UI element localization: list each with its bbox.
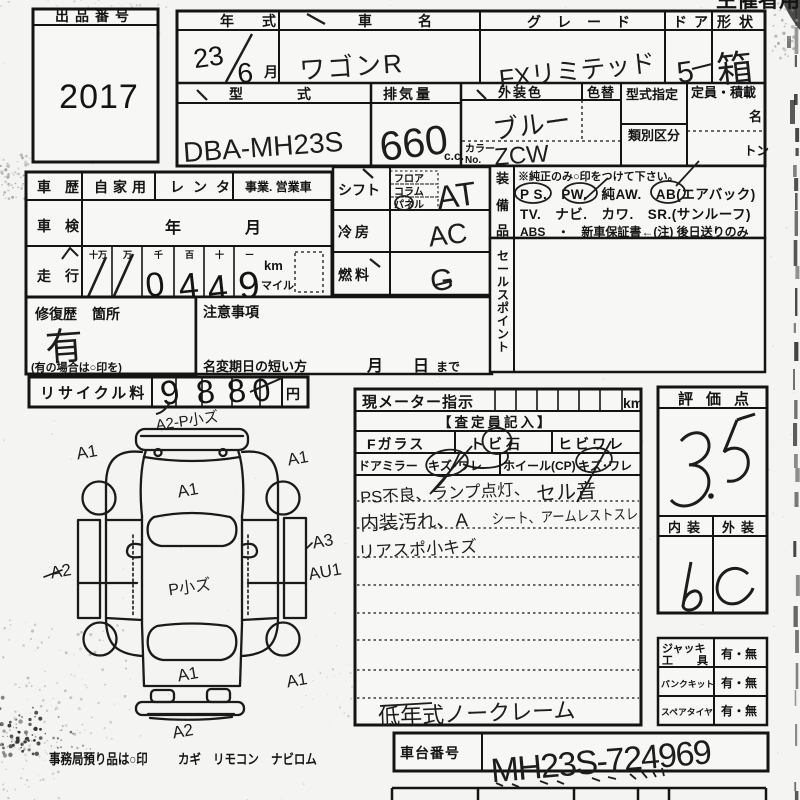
svg-text:車検: 車検: [37, 218, 93, 234]
svg-text:状: 状: [739, 14, 754, 30]
svg-text:ル: ル: [497, 275, 509, 289]
svg-text:A1: A1: [176, 479, 200, 501]
svg-text:ー: ー: [587, 14, 601, 30]
svg-text:レンタ: レンタ: [170, 179, 239, 195]
svg-text:走行: 走行: [37, 268, 93, 284]
svg-text:セル音: セル音: [536, 479, 597, 505]
svg-text:工: 工: [662, 654, 673, 667]
svg-text:名: 名: [749, 109, 762, 124]
svg-text:c.c.: c.c.: [444, 149, 464, 163]
svg-text:名変期日の短い方: 名変期日の短い方: [203, 359, 307, 374]
svg-text:ポ: ポ: [497, 300, 509, 315]
svg-text:A1: A1: [176, 663, 200, 685]
svg-text:TV. ナビ. カワ. SR.(サンルーフ): TV. ナビ. カワ. SR.(サンルーフ): [520, 207, 751, 222]
svg-text:(有の場合は○印を): (有の場合は○印を): [31, 360, 122, 374]
svg-text:パンクキット: パンクキット: [661, 678, 714, 689]
svg-text:替: 替: [601, 85, 615, 100]
svg-text:品: 品: [496, 223, 509, 238]
svg-text:ドアミラー: ドアミラー: [358, 459, 418, 473]
svg-text:トビ石: トビ石: [470, 436, 524, 452]
svg-text:A1: A1: [285, 669, 309, 691]
svg-text:名: 名: [418, 13, 432, 29]
svg-text:km: km: [264, 258, 283, 273]
svg-text:有・無: 有・無: [721, 675, 757, 690]
svg-text:備: 備: [496, 198, 509, 213]
svg-text:有・無: 有・無: [721, 703, 757, 718]
svg-text:リサイクル料: リサイクル料: [40, 384, 147, 402]
svg-text:事業. 営業車: 事業. 営業車: [245, 179, 312, 194]
svg-text:類別区分: 類別区分: [627, 128, 680, 143]
svg-text:千: 千: [154, 249, 163, 260]
svg-text:自家用: 自家用: [94, 179, 151, 195]
svg-text:ー: ー: [497, 262, 509, 276]
svg-text:Fガラス: Fガラス: [367, 436, 425, 452]
svg-text:A1: A1: [286, 447, 310, 469]
svg-text:車台番号: 車台番号: [400, 745, 460, 761]
svg-text:23: 23: [191, 40, 225, 74]
svg-text:マイル: マイル: [261, 279, 294, 292]
svg-text:装: 装: [495, 171, 509, 186]
svg-text:月: 月: [244, 219, 261, 237]
svg-text:※純正のみ○印をつけて下さい。: ※純正のみ○印をつけて下さい。: [518, 169, 679, 183]
svg-text:6: 6: [236, 57, 255, 89]
svg-text:内装: 内装: [668, 520, 706, 535]
svg-text:A2: A2: [171, 720, 195, 742]
svg-text:トン: トン: [744, 144, 769, 158]
svg-text:No.: No.: [465, 155, 481, 166]
svg-text:AT: AT: [434, 174, 478, 216]
svg-text:ン: ン: [497, 327, 509, 341]
svg-text:車: 車: [358, 13, 372, 29]
svg-text:ホイール(CP): ホイール(CP): [503, 459, 576, 473]
svg-text:ア: ア: [694, 14, 708, 30]
svg-text:660: 660: [377, 116, 451, 170]
svg-text:2017: 2017: [59, 78, 139, 116]
svg-text:外: 外: [497, 85, 511, 100]
svg-text:事務局預り品は○印: 事務局預り品は○印: [49, 751, 148, 767]
svg-text:P S. PW. 純AW. AB(エアバック): P S. PW. 純AW. AB(エアバック): [520, 186, 756, 202]
svg-text:日: 日: [413, 357, 429, 375]
svg-text:注意事項: 注意事項: [203, 304, 260, 320]
svg-text:出品番号: 出品番号: [55, 8, 135, 24]
svg-text:外装: 外装: [721, 520, 760, 535]
svg-text:ジャッキ: ジャッキ: [662, 642, 705, 655]
svg-text:セ: セ: [497, 249, 509, 263]
svg-text:ド: ド: [616, 14, 630, 30]
svg-text:年: 年: [220, 13, 234, 29]
svg-text:月: 月: [263, 64, 278, 80]
svg-text:形: 形: [717, 14, 731, 30]
svg-text:具: 具: [697, 654, 708, 667]
svg-text:スペアタイヤ: スペアタイヤ: [661, 706, 713, 717]
svg-text:色: 色: [587, 85, 600, 100]
svg-text:フロア: フロア: [394, 173, 424, 185]
svg-text:気: 気: [399, 86, 413, 102]
svg-text:シフト: シフト: [338, 182, 380, 198]
svg-text:月: 月: [366, 357, 383, 375]
svg-text:評価点: 評価点: [678, 390, 762, 408]
svg-text:まで: まで: [436, 360, 460, 374]
svg-text:リモコン: リモコン: [213, 752, 259, 767]
svg-text:箇所: 箇所: [92, 306, 120, 322]
svg-text:車歴: 車歴: [37, 179, 93, 195]
svg-text:イ: イ: [497, 314, 509, 328]
svg-text:冷房: 冷房: [338, 224, 372, 240]
svg-text:ナビロム: ナビロム: [271, 751, 317, 767]
svg-text:カラー: カラー: [465, 143, 495, 155]
svg-text:A3: A3: [311, 530, 335, 552]
svg-text:現メーター指示: 現メーター指示: [362, 393, 474, 411]
svg-text:型式指定: 型式指定: [626, 87, 678, 102]
svg-text:ド: ド: [673, 14, 687, 30]
svg-text:装: 装: [512, 85, 526, 100]
svg-text:定員・積載: 定員・積載: [690, 85, 756, 100]
svg-text:十: 十: [215, 249, 224, 260]
svg-text:ス: ス: [497, 288, 509, 302]
svg-text:A1: A1: [75, 441, 99, 463]
svg-text:カギ: カギ: [178, 752, 201, 767]
svg-text:円: 円: [286, 386, 300, 402]
svg-text:量: 量: [416, 86, 430, 102]
svg-text:式: 式: [297, 86, 311, 102]
svg-text:有・無: 有・無: [721, 646, 757, 661]
svg-text:ー: ー: [245, 250, 254, 260]
svg-text:排: 排: [383, 86, 397, 102]
svg-text:内装汚れ、A: 内装汚れ、A: [360, 509, 469, 535]
svg-text:百: 百: [185, 250, 194, 260]
svg-text:型: 型: [229, 86, 243, 102]
svg-text:修復歴: 修復歴: [34, 306, 77, 322]
svg-text:AC: AC: [427, 217, 469, 253]
svg-text:年: 年: [165, 218, 181, 237]
svg-text:式: 式: [262, 13, 276, 29]
svg-text:レ: レ: [557, 14, 571, 30]
svg-text:燃料: 燃料: [338, 267, 372, 283]
svg-text:グ: グ: [527, 14, 541, 30]
svg-text:ト: ト: [497, 340, 509, 354]
svg-text:ヒビワレ: ヒビワレ: [558, 436, 626, 452]
svg-text:色: 色: [528, 85, 541, 100]
svg-text:km: km: [623, 395, 643, 411]
